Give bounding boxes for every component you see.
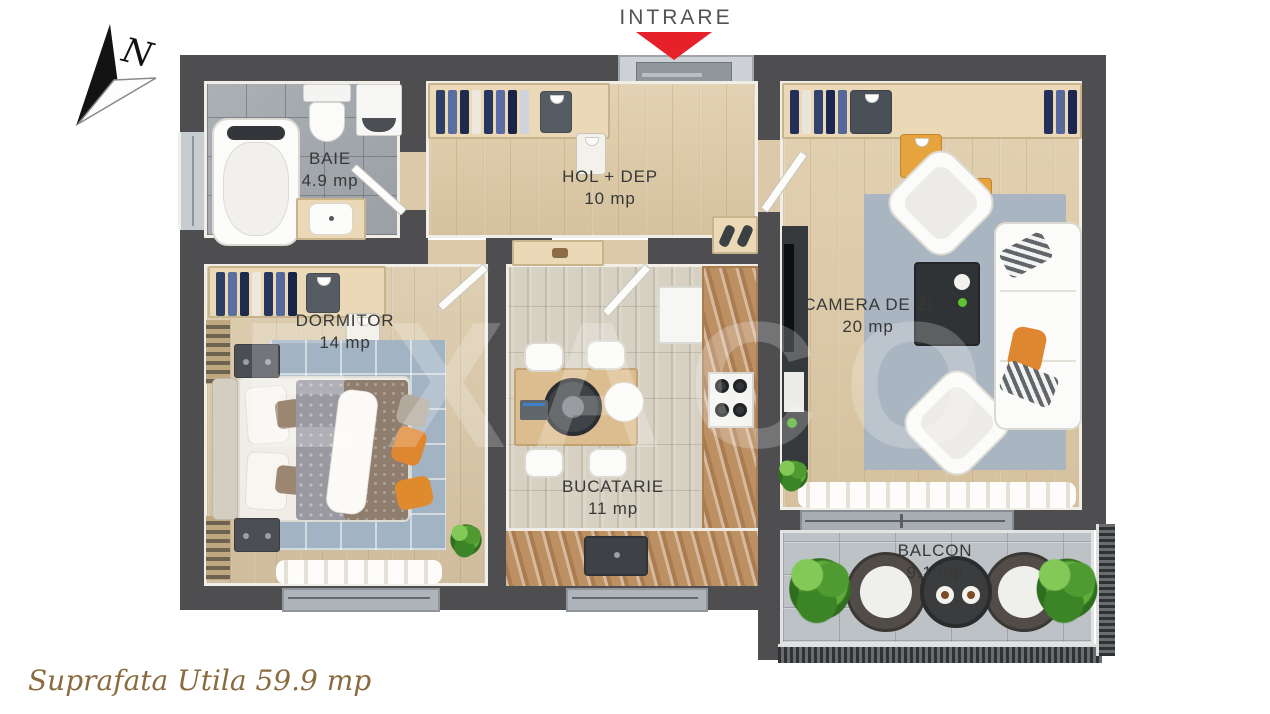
balcony-railing-right	[1096, 524, 1115, 656]
sofa	[994, 222, 1082, 430]
glazing-divider	[900, 514, 903, 528]
dining-table	[514, 368, 638, 446]
wall-living-left-upper	[758, 55, 780, 140]
clothes-item	[216, 272, 225, 316]
burner	[733, 403, 747, 417]
room-label-hol: HOL + DEP 10 mp	[530, 166, 690, 210]
dining-chair	[586, 340, 626, 370]
glazing-line	[805, 520, 1005, 522]
clothes-item	[790, 90, 799, 134]
room-name: BAIE	[260, 148, 400, 170]
room-area: 11 mp	[533, 498, 693, 520]
pillow-striped	[998, 230, 1054, 279]
bed-headboard	[212, 378, 238, 520]
clothes-item	[496, 90, 505, 134]
sink-drain	[329, 216, 334, 221]
plant	[788, 550, 852, 628]
sink-cabinet	[296, 198, 366, 240]
plant	[450, 520, 482, 560]
faucet	[614, 552, 620, 558]
clothes-item	[802, 90, 811, 134]
clothes-item	[484, 90, 493, 134]
room-name: HOL + DEP	[530, 166, 690, 188]
kitchen-sink	[584, 536, 648, 576]
wall-balcony-top-right	[1010, 510, 1106, 530]
bedroom-curtain	[276, 560, 442, 584]
kitchen-shelf	[512, 240, 604, 266]
centerpiece-bowl	[544, 378, 602, 436]
balcony-railing-bottom	[778, 644, 1102, 663]
room-label-dormitor: DORMITOR 14 mp	[265, 310, 425, 354]
bed	[238, 376, 410, 522]
doorway-bedroom	[428, 240, 486, 264]
doorway-bath	[400, 152, 426, 210]
room-name: DORMITOR	[265, 310, 425, 332]
dining-chair	[524, 448, 564, 478]
clothes-item	[826, 90, 835, 134]
floorplan-canvas: N INTRARE	[0, 0, 1270, 714]
room-name: BALCON	[855, 540, 1015, 562]
clothes-item	[520, 90, 529, 134]
wall-bedroom-kitchen	[488, 264, 506, 586]
room-area: 10 mp	[530, 188, 690, 210]
entrance-arrow-icon	[636, 32, 712, 60]
window-mullion	[572, 597, 698, 599]
dining-chair	[588, 448, 628, 478]
clothes-item	[228, 272, 237, 316]
laptop	[520, 400, 548, 420]
hanging-clothes	[1044, 90, 1077, 134]
folded-shirt-dark	[540, 91, 572, 133]
wall-right	[1082, 55, 1106, 515]
tray	[954, 274, 970, 290]
toilet-bowl	[309, 102, 345, 142]
plant-pot-small	[787, 418, 797, 428]
burner	[733, 379, 747, 393]
shoes	[736, 224, 754, 248]
clothes-item	[1044, 90, 1053, 134]
clothes-item	[460, 90, 469, 134]
wall-living-left-lower	[758, 212, 780, 660]
room-name: CAMERA DE ZI	[778, 294, 958, 316]
room-area: 9.1 mp	[855, 562, 1015, 584]
clothes-item	[1056, 90, 1065, 134]
clothes-item	[838, 90, 847, 134]
total-usable-area-label: Suprafata Utila 59.9 mp	[28, 664, 371, 697]
plant	[778, 456, 808, 494]
tv-unit	[782, 226, 808, 470]
laptop-screen	[523, 403, 545, 406]
bathtub-headrest	[227, 126, 285, 140]
armchair-cushion	[900, 162, 982, 244]
shirt-dark	[850, 90, 892, 134]
clothes-item	[252, 272, 261, 316]
room-label-bucatarie: BUCATARIE 11 mp	[533, 476, 693, 520]
coffee-cup	[962, 586, 980, 604]
entrance-door-handle	[642, 73, 702, 77]
folded-shirt-dark	[306, 273, 340, 313]
window-mullion	[288, 597, 430, 599]
toilet-tank	[303, 84, 351, 102]
decor-green	[958, 298, 967, 307]
kitchen-window	[566, 588, 708, 612]
plant	[1036, 550, 1098, 628]
sofa-seam	[1000, 290, 1076, 292]
coffee-cup	[936, 586, 954, 604]
clothes-item	[448, 90, 457, 134]
compass-rose-icon: N	[52, 20, 164, 132]
clothes-item	[1068, 90, 1077, 134]
clothes-item	[472, 90, 481, 134]
burner	[715, 379, 729, 393]
room-area: 14 mp	[265, 332, 425, 354]
room-label-camera-de-zi: CAMERA DE ZI 20 mp	[778, 294, 958, 338]
hanging-clothes	[790, 90, 847, 134]
living-curtain	[798, 482, 1076, 508]
room-name: BUCATARIE	[533, 476, 693, 498]
wall-balcony-top-left	[780, 510, 800, 530]
room-label-balcon: BALCON 9.1 mp	[855, 540, 1015, 584]
living-wardrobe	[782, 83, 1082, 139]
decor-item	[552, 248, 568, 258]
burner	[715, 403, 729, 417]
bedroom-window	[282, 588, 440, 612]
wall-top-right	[746, 55, 1106, 81]
room-area: 20 mp	[778, 316, 958, 338]
tray	[604, 382, 644, 422]
washing-machine	[356, 84, 402, 136]
room-area: 4.9 mp	[260, 170, 400, 192]
wall-bath-right-upper	[400, 55, 426, 152]
nightstand	[234, 518, 280, 552]
clothes-item	[508, 90, 517, 134]
clothes-item	[814, 90, 823, 134]
tv-shelf	[784, 372, 804, 412]
entrance-label: INTRARE	[596, 6, 756, 30]
shoe-cabinet	[712, 216, 758, 254]
hanging-clothes	[436, 90, 529, 134]
pillow-striped	[998, 359, 1060, 409]
stove	[708, 372, 754, 428]
dining-chair	[524, 342, 564, 372]
compass-north-letter: N	[117, 30, 158, 77]
fridge	[658, 286, 706, 344]
armchair-cushion	[916, 382, 998, 464]
slatted-bench	[206, 320, 230, 384]
window-mullion	[192, 136, 194, 226]
room-label-baie: BAIE 4.9 mp	[260, 148, 400, 192]
washing-machine-door	[362, 118, 396, 132]
shoes	[718, 224, 736, 248]
clothes-item	[436, 90, 445, 134]
slatted-bench	[206, 516, 230, 580]
clothes-item	[240, 272, 249, 316]
hall-wardrobe	[428, 83, 610, 139]
